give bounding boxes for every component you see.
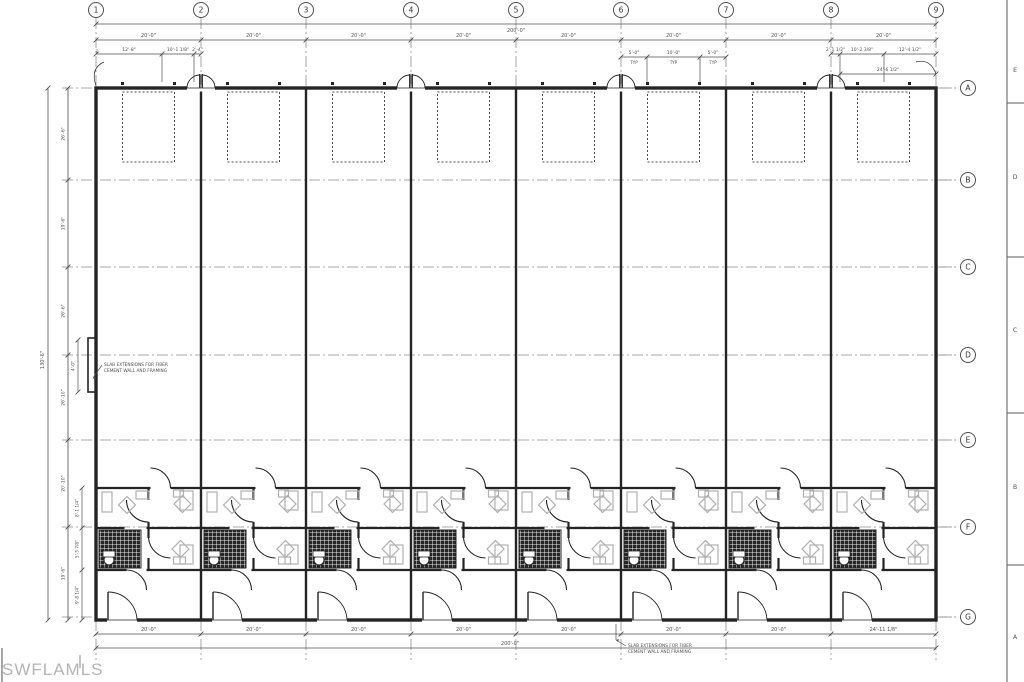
watermark: SWFLAMLS [2, 660, 104, 680]
svg-text:A: A [965, 84, 971, 93]
slab-note: SLAB EXTENSIONS FOR FIBER [628, 643, 692, 649]
svg-text:TYP: TYP [629, 60, 638, 65]
svg-text:26'-6": 26'-6" [61, 304, 67, 318]
slab-note: CEMENT WALL AND FRAMING [104, 368, 167, 374]
svg-text:26'-10": 26'-10" [61, 389, 67, 405]
svg-text:24'-11 1/8": 24'-11 1/8" [870, 627, 898, 633]
svg-text:5'-0": 5'-0" [629, 50, 640, 56]
sheet-zone-letter: A [1013, 634, 1018, 641]
svg-text:19'-6": 19'-6" [61, 217, 67, 231]
svg-text:10'-1 1/8": 10'-1 1/8" [167, 47, 189, 53]
grid-bubbles: 123456789 [89, 3, 944, 18]
sheet-zone-letter: E [1013, 67, 1017, 74]
svg-text:7: 7 [724, 6, 729, 15]
slab-note: CEMENT WALL AND FRAMING [628, 649, 691, 655]
svg-text:20'-10": 20'-10" [61, 475, 67, 491]
sheet-zone-letter: B [1013, 484, 1017, 491]
svg-text:6: 6 [619, 6, 624, 15]
svg-text:20'-0": 20'-0" [141, 627, 156, 633]
svg-text:10'-0": 10'-0" [667, 50, 681, 56]
svg-text:F: F [966, 523, 970, 532]
sheet-zone-letter: C [1013, 327, 1017, 334]
svg-text:24'-6 1/2": 24'-6 1/2" [877, 67, 899, 73]
svg-text:2'-1 1/2": 2'-1 1/2" [826, 47, 845, 53]
svg-text:B: B [965, 176, 970, 185]
svg-text:26'-6": 26'-6" [61, 127, 67, 141]
svg-text:5'-0": 5'-0" [708, 50, 719, 56]
svg-text:20'-0": 20'-0" [876, 33, 891, 39]
svg-text:20'-0": 20'-0" [561, 627, 576, 633]
svg-text:E: E [966, 436, 971, 445]
svg-text:20'-0": 20'-0" [351, 627, 366, 633]
svg-text:19'-6": 19'-6" [61, 567, 67, 581]
svg-text:2'-4": 2'-4" [192, 47, 203, 53]
svg-text:10'-2 3/8": 10'-2 3/8" [851, 47, 873, 53]
svg-text:9: 9 [934, 6, 939, 15]
svg-text:20'-0": 20'-0" [561, 33, 576, 39]
svg-text:200'-0": 200'-0" [507, 28, 525, 34]
svg-text:12'-4 1/2": 12'-4 1/2" [899, 47, 921, 53]
svg-text:5'-5 7/8": 5'-5 7/8" [75, 540, 80, 558]
drawing-sheet: EDCBA123456789ABCDEFG200'-0"20'-0"20'-0"… [0, 0, 1024, 682]
svg-text:D: D [965, 351, 971, 360]
dimensions-left: 130'-6"26'-6"19'-6"26'-6"26'-10"20'-10"1… [40, 86, 84, 623]
svg-text:2: 2 [199, 6, 204, 15]
row-bubbles: ABCDEFG [940, 81, 976, 625]
floor-plan-svg: EDCBA123456789ABCDEFG200'-0"20'-0"20'-0"… [0, 0, 1024, 682]
svg-text:8: 8 [829, 6, 834, 15]
svg-text:20'-0": 20'-0" [771, 33, 786, 39]
notes: SLAB EXTENSIONS FOR FIBERCEMENT WALL AND… [93, 362, 692, 655]
svg-text:3: 3 [304, 6, 309, 15]
svg-text:20'-0": 20'-0" [666, 33, 681, 39]
svg-text:20'-0": 20'-0" [351, 33, 366, 39]
svg-text:1: 1 [94, 6, 99, 15]
svg-text:9'-8 1/4": 9'-8 1/4" [75, 586, 80, 604]
svg-text:20'-0": 20'-0" [246, 33, 261, 39]
svg-text:20'-0": 20'-0" [666, 627, 681, 633]
svg-text:12'-8": 12'-8" [122, 47, 136, 53]
slab-note: SLAB EXTENSIONS FOR FIBER [104, 362, 168, 368]
svg-text:20'-0": 20'-0" [141, 33, 156, 39]
svg-text:TYP: TYP [669, 60, 678, 65]
svg-text:130'-6": 130'-6" [40, 351, 46, 369]
sheet-border: EDCBA [2, 0, 1024, 682]
svg-text:20'-0": 20'-0" [246, 627, 261, 633]
svg-text:20'-0": 20'-0" [456, 33, 471, 39]
svg-text:C: C [965, 263, 970, 272]
svg-text:200'-0": 200'-0" [501, 641, 519, 647]
svg-text:4: 4 [409, 6, 414, 15]
svg-text:20'-0": 20'-0" [771, 627, 786, 633]
svg-text:5: 5 [514, 6, 519, 15]
svg-text:8'-1 1/4": 8'-1 1/4" [75, 499, 80, 517]
svg-text:TYP: TYP [708, 60, 717, 65]
sheet-zone-letter: D [1013, 174, 1018, 181]
svg-text:G: G [965, 613, 971, 622]
svg-text:20'-0": 20'-0" [456, 627, 471, 633]
svg-text:4'-0": 4'-0" [71, 361, 76, 371]
